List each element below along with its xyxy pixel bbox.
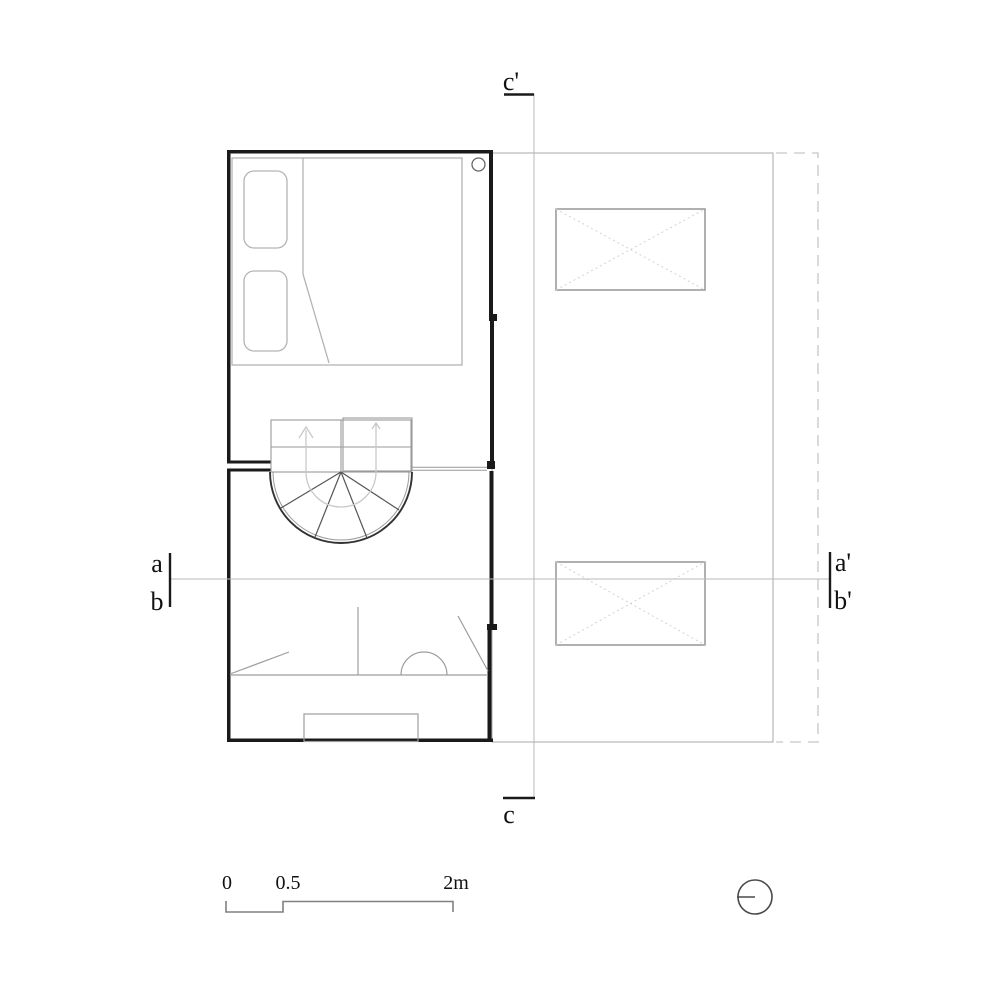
- bed: [232, 158, 462, 365]
- basin-arc: [401, 652, 447, 675]
- glazing-strip: [411, 467, 487, 470]
- floor-plan-canvas: c' c a b a' b' 0 0.5 2m: [0, 0, 1000, 1000]
- skylight-1: [556, 209, 705, 290]
- bed-outline: [232, 158, 462, 365]
- skylight-2: [556, 562, 705, 645]
- north-symbol: [737, 880, 772, 914]
- scale-bar: 0 0.5 2m: [222, 872, 469, 912]
- column-circle: [472, 158, 485, 171]
- lower-room-fixtures: [230, 607, 488, 742]
- stair-inner-arc: [273, 472, 409, 540]
- section-label-c-prime: c': [503, 67, 519, 96]
- scale-label-0: 0: [222, 872, 232, 894]
- scale-label-05: 0.5: [276, 872, 301, 894]
- dashed-extension: [776, 153, 818, 742]
- scale-label-2m: 2m: [443, 872, 469, 894]
- section-label-c: c: [503, 800, 515, 829]
- floor-plan-drawing: c' c a b a' b' 0 0.5 2m: [0, 0, 1000, 1000]
- scale-bar-line: [226, 901, 453, 912]
- spiral-stair: [270, 418, 412, 543]
- section-label-a: a: [151, 549, 163, 578]
- section-line-ab: [170, 552, 830, 608]
- section-label-b: b: [151, 587, 164, 616]
- door-swing-right: [458, 616, 488, 671]
- section-label-b-prime: b': [834, 586, 852, 615]
- lower-volume-walls: [227, 469, 497, 743]
- section-label-a-prime: a': [835, 548, 851, 577]
- door-swing-left: [230, 652, 289, 674]
- section-line-cc: [503, 94, 535, 798]
- entry-step: [304, 714, 418, 742]
